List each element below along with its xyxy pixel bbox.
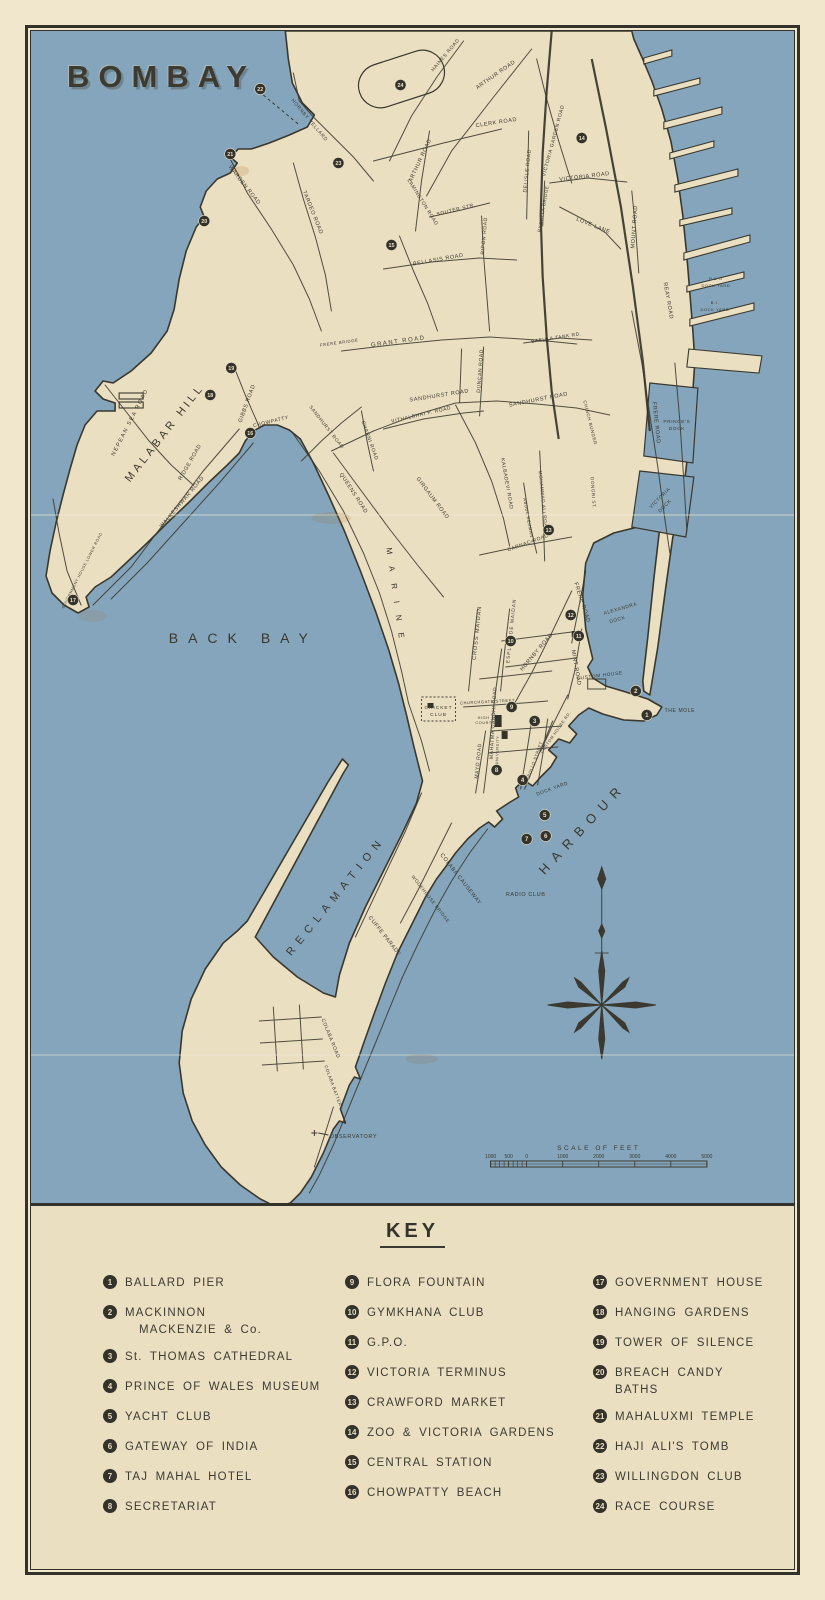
key-item: 6GATEWAY OF INDIA	[103, 1438, 345, 1458]
key-item-label: HAJI ALI'S TOMB	[615, 1438, 730, 1456]
key-item: 23WILLINGDON CLUB	[593, 1468, 764, 1488]
key-item-number: 22	[593, 1439, 607, 1453]
svg-text:24: 24	[397, 83, 403, 89]
key-item: 2MACKINNONMACKENZIE & Co.	[103, 1304, 345, 1338]
scale-tick: 4000	[665, 1154, 676, 1160]
svg-text:4: 4	[521, 777, 525, 784]
map-canvas: SCALE OF FEET BACK BAYMALABAR HILLHARBOU…	[31, 31, 794, 1203]
key-item-number: 18	[593, 1305, 607, 1319]
key-item-number: 7	[103, 1469, 117, 1483]
key-title: KEY	[380, 1220, 445, 1248]
svg-text:14: 14	[579, 136, 585, 142]
key-item-number: 17	[593, 1275, 607, 1289]
key-item-number: 1	[103, 1275, 117, 1289]
map-marker-2: 2	[630, 685, 641, 696]
map-marker-5: 5	[539, 809, 550, 820]
key-item-number: 14	[345, 1425, 359, 1439]
key-item-label: PRINCE OF WALES MUSEUM	[125, 1378, 320, 1396]
svg-text:19: 19	[228, 366, 234, 372]
map-marker-15: 15	[386, 239, 397, 250]
svg-text:12: 12	[568, 613, 574, 619]
key-item-number: 10	[345, 1305, 359, 1319]
map-label: COURT	[475, 721, 492, 725]
key-item-number: 11	[345, 1335, 359, 1349]
map-label: RADIO CLUB	[506, 892, 546, 898]
svg-text:5: 5	[543, 812, 547, 819]
map-marker-19: 19	[226, 362, 237, 373]
key-item-number: 24	[593, 1499, 607, 1513]
key-item-label: HANGING GARDENS	[615, 1304, 750, 1322]
map-frame: SCALE OF FEET BACK BAYMALABAR HILLHARBOU…	[25, 25, 800, 1575]
key-item-number: 16	[345, 1485, 359, 1499]
scale-tick: 1000	[557, 1154, 568, 1160]
key-item: 14ZOO & VICTORIA GARDENS	[345, 1424, 593, 1444]
svg-text:13: 13	[546, 528, 552, 534]
map-marker-7: 7	[521, 833, 532, 844]
map-marker-18: 18	[205, 389, 216, 400]
key-item-label: GYMKHANA CLUB	[367, 1304, 485, 1322]
key-item: 13CRAWFORD MARKET	[345, 1394, 593, 1414]
map-marker-1: 1	[641, 709, 652, 720]
map-label: THE MOLE	[665, 708, 695, 714]
key-item-number: 15	[345, 1455, 359, 1469]
key-item-label: G.P.O.	[367, 1334, 408, 1352]
svg-text:2: 2	[634, 688, 638, 695]
map-label: OBSERVATORY	[330, 1134, 377, 1140]
map-label: B.I.	[711, 300, 719, 305]
key-item: 16CHOWPATTY BEACH	[345, 1484, 593, 1504]
key-item: 8SECRETARIAT	[103, 1498, 345, 1518]
key-item-number: 19	[593, 1335, 607, 1349]
key-item-label: St. THOMAS CATHEDRAL	[125, 1348, 293, 1366]
scale-tick: 1000	[485, 1154, 496, 1160]
key-item-number: 20	[593, 1365, 607, 1379]
key-item-number: 8	[103, 1499, 117, 1513]
key-item-number: 13	[345, 1395, 359, 1409]
map-marker-13: 13	[543, 524, 554, 535]
svg-text:18: 18	[207, 393, 213, 399]
key-item-label: FLORA FOUNTAIN	[367, 1274, 486, 1292]
map-marker-3: 3	[529, 715, 540, 726]
key-columns: 1BALLARD PIER2MACKINNONMACKENZIE & Co.3S…	[31, 1248, 794, 1528]
key-item: 11G.P.O.	[345, 1334, 593, 1354]
key-item-number: 3	[103, 1349, 117, 1363]
scale-tick: 3000	[629, 1154, 640, 1160]
key-item-label: MACKINNONMACKENZIE & Co.	[125, 1304, 262, 1338]
key-item-label: RACE COURSE	[615, 1498, 716, 1516]
map-marker-11: 11	[573, 630, 584, 641]
key-item-number: 12	[345, 1365, 359, 1379]
key-item-label: GOVERNMENT HOUSE	[615, 1274, 764, 1292]
key-item-number: 21	[593, 1409, 607, 1423]
svg-text:10: 10	[508, 639, 514, 645]
bombay-map: SCALE OF FEET BACK BAYMALABAR HILLHARBOU…	[31, 31, 794, 1203]
key-column: 9FLORA FOUNTAIN10GYMKHANA CLUB11G.P.O.12…	[345, 1274, 593, 1528]
key-item-label: BALLARD PIER	[125, 1274, 225, 1292]
map-label: DOCK YARD	[700, 307, 729, 312]
key-item: 4PRINCE OF WALES MUSEUM	[103, 1378, 345, 1398]
key-item: 18HANGING GARDENS	[593, 1304, 764, 1324]
map-label: CRICKET	[424, 705, 452, 711]
svg-text:15: 15	[388, 243, 394, 249]
key-item: 3St. THOMAS CATHEDRAL	[103, 1348, 345, 1368]
svg-text:23: 23	[335, 161, 341, 167]
key-item-number: 2	[103, 1305, 117, 1319]
svg-text:9: 9	[510, 704, 514, 711]
svg-text:17: 17	[70, 598, 76, 604]
key-item-label: TAJ MAHAL HOTEL	[125, 1468, 253, 1486]
svg-text:20: 20	[201, 219, 207, 225]
map-marker-17: 17	[67, 594, 78, 605]
key-panel: KEY 1BALLARD PIER2MACKINNONMACKENZIE & C…	[31, 1203, 794, 1569]
map-marker-10: 10	[505, 635, 516, 646]
key-item: 17GOVERNMENT HOUSE	[593, 1274, 764, 1294]
map-label: DOCK YARD	[701, 283, 730, 288]
key-item-label: TOWER OF SILENCE	[615, 1334, 754, 1352]
map-marker-23: 23	[333, 157, 344, 168]
key-item: 15CENTRAL STATION	[345, 1454, 593, 1474]
key-item: 10GYMKHANA CLUB	[345, 1304, 593, 1324]
map-marker-22: 22	[255, 83, 266, 94]
key-item: 12VICTORIA TERMINUS	[345, 1364, 593, 1384]
key-item-number: 9	[345, 1275, 359, 1289]
scale-tick: 0	[525, 1154, 528, 1160]
key-item-label: SECRETARIAT	[125, 1498, 217, 1516]
scale-tick: 500	[504, 1154, 513, 1160]
key-column: 17GOVERNMENT HOUSE18HANGING GARDENS19TOW…	[593, 1274, 764, 1528]
map-label: P & O	[709, 276, 723, 281]
key-item-label: CRAWFORD MARKET	[367, 1394, 506, 1412]
key-item-label: GATEWAY OF INDIA	[125, 1438, 258, 1456]
key-item: 7TAJ MAHAL HOTEL	[103, 1468, 345, 1488]
svg-text:1: 1	[645, 712, 649, 719]
map-label: PRINCE'S	[663, 419, 690, 425]
map-marker-8: 8	[491, 764, 502, 775]
svg-text:7: 7	[525, 836, 529, 843]
key-item-label: VICTORIA TERMINUS	[367, 1364, 507, 1382]
svg-text:8: 8	[495, 767, 499, 774]
map-marker-6: 6	[540, 830, 551, 841]
key-item-number: 23	[593, 1469, 607, 1483]
key-item-label: WILLINGDON CLUB	[615, 1468, 743, 1486]
key-item: 22HAJI ALI'S TOMB	[593, 1438, 764, 1458]
key-item-label: MAHALUXMI TEMPLE	[615, 1408, 755, 1426]
scale-title: SCALE OF FEET	[557, 1145, 640, 1152]
map-marker-4: 4	[517, 774, 528, 785]
key-item-label: CENTRAL STATION	[367, 1454, 493, 1472]
map-marker-24: 24	[395, 79, 406, 90]
map-marker-14: 14	[576, 132, 587, 143]
map-label: DOCK	[669, 426, 685, 432]
key-item: 1BALLARD PIER	[103, 1274, 345, 1294]
key-item: 5YACHT CLUB	[103, 1408, 345, 1428]
key-item: 21MAHALUXMI TEMPLE	[593, 1408, 764, 1428]
svg-text:3: 3	[533, 718, 537, 725]
key-item-label: YACHT CLUB	[125, 1408, 212, 1426]
map-marker-12: 12	[565, 609, 576, 620]
map-label: CLUB	[430, 712, 447, 718]
key-item-number: 5	[103, 1409, 117, 1423]
key-item-label: CHOWPATTY BEACH	[367, 1484, 502, 1502]
svg-text:21: 21	[227, 152, 233, 158]
key-item: 9FLORA FOUNTAIN	[345, 1274, 593, 1294]
key-item: 24RACE COURSE	[593, 1498, 764, 1518]
scale-tick: 5000	[701, 1154, 712, 1160]
map-title: BOMBAY	[67, 59, 256, 95]
key-item-label: BREACH CANDY BATHS	[615, 1364, 764, 1398]
map-marker-9: 9	[506, 701, 517, 712]
key-item: 19TOWER OF SILENCE	[593, 1334, 764, 1354]
map-label: BACK BAY	[169, 630, 318, 646]
map-frame-inner: SCALE OF FEET BACK BAYMALABAR HILLHARBOU…	[30, 30, 795, 1570]
key-item: 20BREACH CANDY BATHS	[593, 1364, 764, 1398]
map-marker-20: 20	[199, 215, 210, 226]
key-item-number: 6	[103, 1439, 117, 1453]
map-marker-16: 16	[245, 427, 256, 438]
svg-text:22: 22	[257, 87, 263, 93]
key-item-label: ZOO & VICTORIA GARDENS	[367, 1424, 555, 1442]
svg-text:11: 11	[576, 634, 582, 640]
key-item-number: 4	[103, 1379, 117, 1393]
svg-text:6: 6	[544, 833, 548, 840]
map-marker-21: 21	[225, 148, 236, 159]
map-label: HIGH	[478, 716, 490, 720]
svg-text:16: 16	[247, 431, 253, 437]
key-column: 1BALLARD PIER2MACKINNONMACKENZIE & Co.3S…	[103, 1274, 345, 1528]
scale-tick: 2000	[593, 1154, 604, 1160]
